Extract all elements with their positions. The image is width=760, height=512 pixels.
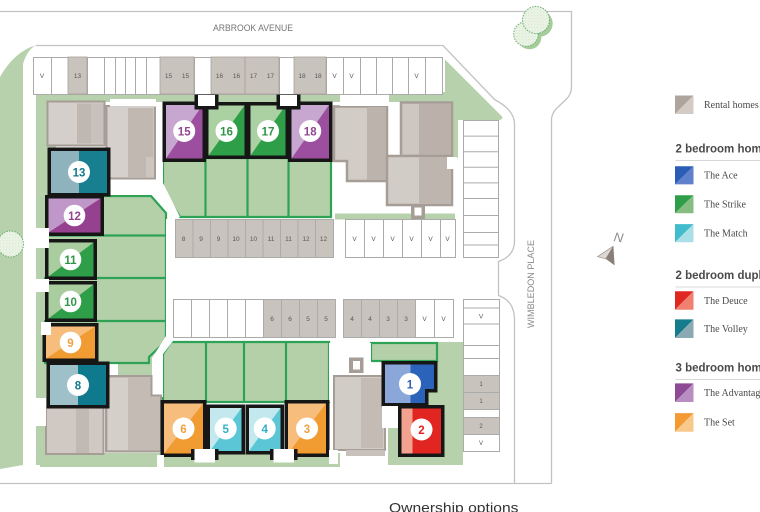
svg-text:9: 9: [67, 338, 73, 350]
svg-text:The Deuce: The Deuce: [704, 296, 748, 307]
svg-text:6: 6: [288, 316, 292, 323]
svg-text:12: 12: [302, 236, 310, 243]
svg-text:8: 8: [75, 381, 82, 393]
svg-text:16: 16: [216, 73, 224, 80]
svg-text:Rental homes: Rental homes: [704, 100, 759, 111]
svg-text:1: 1: [407, 380, 414, 392]
svg-text:9: 9: [217, 236, 221, 243]
svg-text:17: 17: [262, 127, 275, 139]
svg-text:10: 10: [232, 236, 240, 243]
svg-text:V: V: [409, 236, 414, 243]
svg-text:2: 2: [418, 425, 424, 437]
svg-text:5: 5: [306, 316, 310, 323]
svg-text:5: 5: [222, 424, 229, 436]
svg-text:V: V: [40, 73, 45, 80]
svg-text:16: 16: [220, 127, 233, 139]
svg-text:WIMBLEDON PLACE: WIMBLEDON PLACE: [526, 240, 537, 328]
svg-text:15: 15: [178, 127, 191, 139]
svg-text:13: 13: [74, 73, 82, 80]
svg-text:The Set: The Set: [704, 418, 735, 429]
svg-text:17: 17: [250, 73, 258, 80]
svg-text:The Advantage: The Advantage: [704, 388, 760, 399]
svg-text:V: V: [428, 236, 433, 243]
svg-text:V: V: [441, 316, 446, 323]
svg-text:10: 10: [250, 236, 258, 243]
svg-text:The Strike: The Strike: [704, 200, 746, 211]
svg-text:12: 12: [320, 236, 328, 243]
svg-text:V: V: [414, 73, 419, 80]
svg-text:V: V: [479, 441, 483, 447]
svg-text:V: V: [352, 236, 357, 243]
svg-text:6: 6: [270, 316, 274, 323]
svg-text:V: V: [445, 236, 450, 243]
svg-text:10: 10: [64, 297, 77, 309]
svg-text:V: V: [332, 73, 337, 80]
svg-text:Ownership options: Ownership options: [389, 500, 519, 512]
svg-text:ARBROOK AVENUE: ARBROOK AVENUE: [213, 23, 293, 33]
svg-text:18: 18: [304, 127, 317, 139]
svg-text:13: 13: [73, 168, 86, 180]
svg-text:6: 6: [180, 424, 186, 436]
svg-text:V: V: [390, 236, 395, 243]
svg-text:4: 4: [261, 424, 268, 436]
svg-text:5: 5: [324, 316, 328, 323]
svg-text:8: 8: [182, 236, 186, 243]
svg-text:V: V: [422, 316, 427, 323]
svg-text:18: 18: [298, 73, 306, 80]
svg-text:11: 11: [64, 255, 77, 267]
svg-text:The Match: The Match: [704, 229, 748, 240]
svg-text:16: 16: [233, 73, 241, 80]
svg-text:4: 4: [350, 316, 354, 323]
svg-text:18: 18: [314, 73, 322, 80]
svg-text:9: 9: [199, 236, 203, 243]
svg-text:The Ace: The Ace: [704, 171, 738, 182]
svg-text:11: 11: [285, 236, 292, 243]
svg-text:15: 15: [182, 73, 190, 80]
svg-text:15: 15: [165, 73, 173, 80]
svg-text:3: 3: [304, 424, 310, 436]
svg-text:4: 4: [368, 316, 372, 323]
svg-text:V: V: [479, 314, 484, 321]
svg-text:2 bedroom homes: 2 bedroom homes: [676, 144, 760, 156]
svg-text:V: V: [371, 236, 376, 243]
svg-text:12: 12: [68, 211, 81, 223]
svg-text:3 bedroom homes: 3 bedroom homes: [676, 363, 760, 375]
svg-text:17: 17: [267, 73, 275, 80]
svg-text:3: 3: [386, 316, 390, 323]
svg-text:3: 3: [404, 316, 408, 323]
svg-text:2 bedroom duplexes: 2 bedroom duplexes: [676, 270, 760, 282]
svg-text:11: 11: [268, 236, 275, 243]
svg-text:V: V: [349, 73, 354, 80]
svg-text:The Volley: The Volley: [704, 324, 748, 335]
